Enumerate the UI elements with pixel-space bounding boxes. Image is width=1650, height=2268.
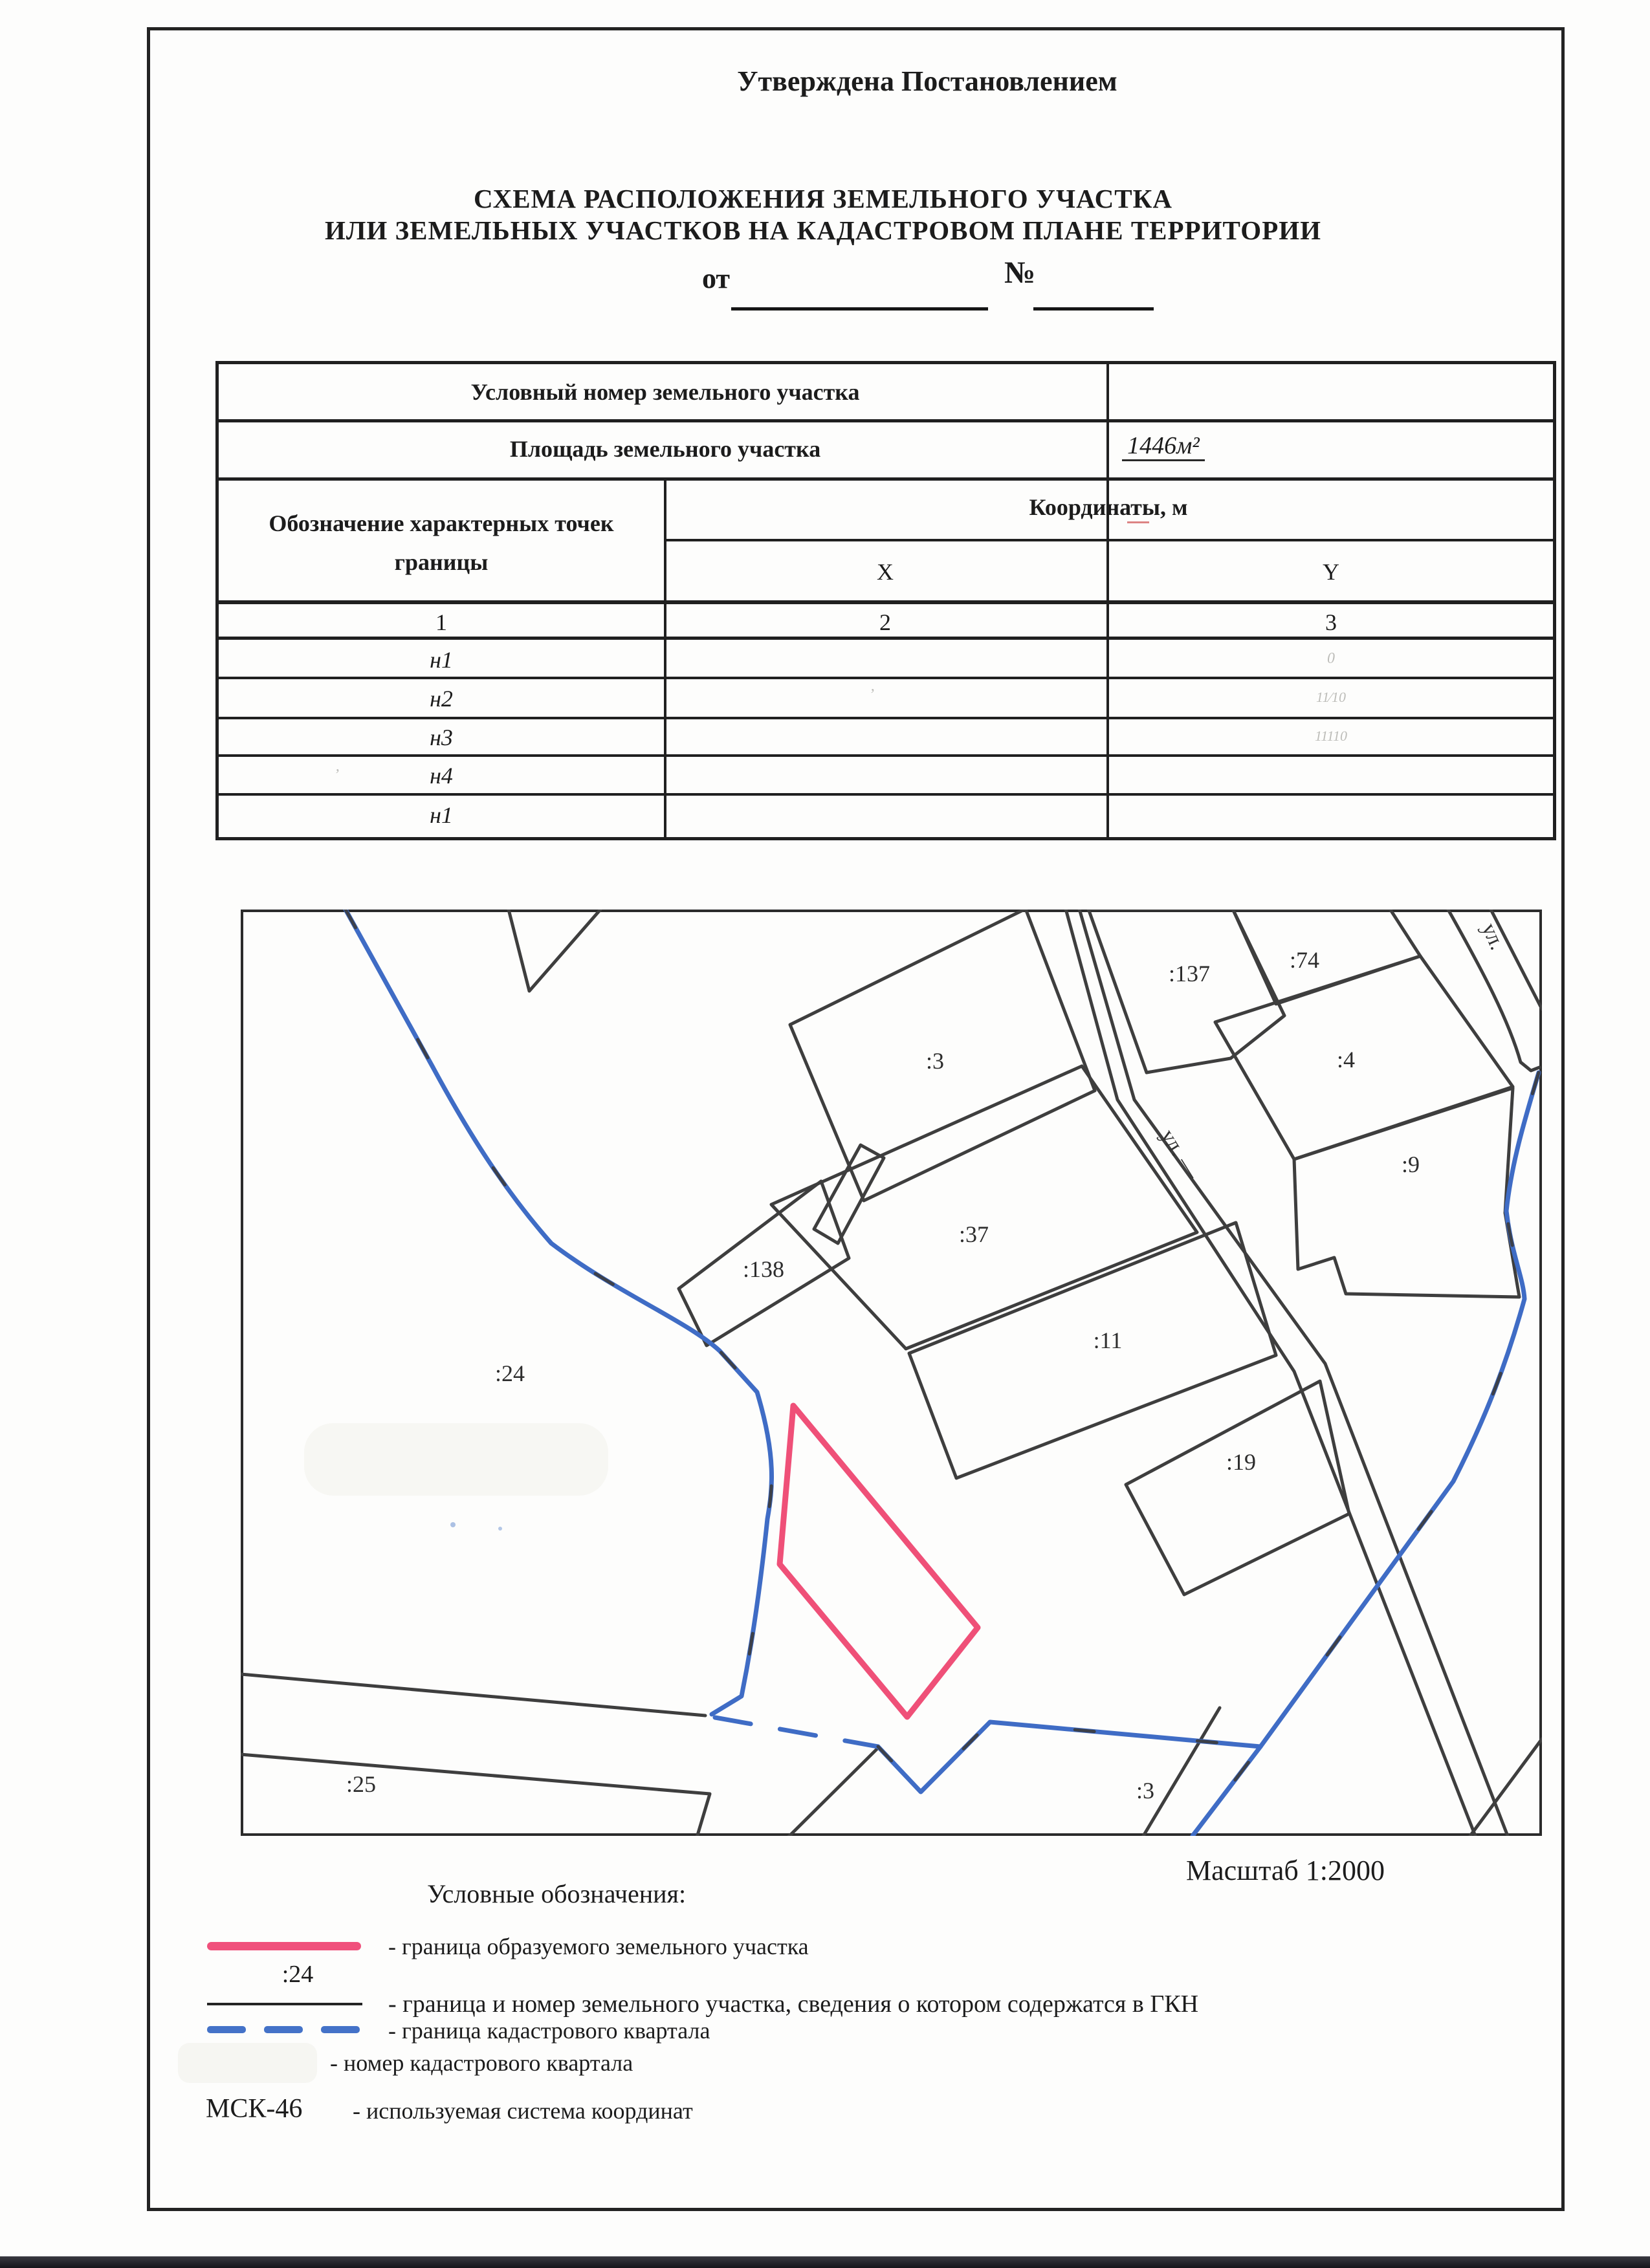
- parcel-label-4: :4: [1337, 1047, 1355, 1073]
- parcel-label-138: :138: [743, 1256, 784, 1282]
- parcel-label-3b: :3: [1136, 1778, 1154, 1804]
- faint-y-value: 11⁄10: [1109, 689, 1553, 706]
- point-row-label: н4: [219, 762, 664, 789]
- parcel-labels: :137 :74 :3 :4 :9 :37 :138 :11 :19 :24 :…: [346, 947, 1420, 1804]
- legend-dash: [264, 2026, 303, 2033]
- scanned-document-page: Утверждена Постановлением от № СХЕМА РАС…: [0, 0, 1650, 2268]
- quarter-boundary-left: [346, 910, 772, 1714]
- street-line: [1066, 910, 1475, 1836]
- coordinates-table: Условный номер земельного участка Площад…: [215, 361, 1556, 840]
- parcel-label-19: :19: [1226, 1449, 1256, 1475]
- scanner-edge-band: [0, 2256, 1650, 2268]
- table-rule: [219, 717, 1553, 719]
- legend-row-text: - граница и номер земельного участка, св…: [388, 1990, 1198, 2018]
- quarter-boundary-dashed: [715, 1717, 878, 1747]
- parcel-label-37: :37: [959, 1221, 989, 1247]
- points-header-line1: Обозначение характерных точек: [219, 510, 664, 537]
- erased-smudge: [304, 1423, 608, 1496]
- col-y-header: Y: [1109, 558, 1553, 585]
- point-row-label: н1: [219, 801, 664, 829]
- table-rule: [219, 677, 1553, 679]
- parcel-label-137: :137: [1169, 961, 1210, 987]
- parcel-9-boundary: [1294, 1088, 1519, 1297]
- legend-row-text: - номер кадастрового квартала: [330, 2049, 633, 2077]
- from-label: от: [702, 262, 730, 295]
- parcel-4-boundary: [1215, 956, 1513, 1159]
- table-rule-vertical: [664, 477, 666, 837]
- index-col-1: 1: [219, 609, 664, 636]
- ink-speck: [498, 1527, 502, 1531]
- legend-msk46-symbol: МСК-46: [206, 2093, 302, 2124]
- approved-by-line: Утверждена Постановлением: [668, 65, 1186, 98]
- faint-tick-mark: ’: [334, 767, 339, 784]
- parcel-19-boundary: [1126, 1381, 1349, 1595]
- coords-header: Координаты, м: [664, 494, 1553, 521]
- parcel-label-25: :25: [346, 1771, 376, 1797]
- point-row-label: н3: [219, 724, 664, 751]
- parcel-37-boundary: [771, 1066, 1197, 1349]
- col-x-header: X: [664, 558, 1106, 585]
- legend-erased-symbol: [178, 2043, 317, 2083]
- table-rule: [219, 637, 1553, 640]
- parcel-edge-bottom: [788, 1748, 878, 1836]
- red-ink-artifact: [1127, 521, 1149, 523]
- parcel-25-boundary: [241, 1754, 710, 1836]
- date-blank-line: [731, 307, 988, 311]
- number-label: №: [1004, 255, 1035, 290]
- legend-24-symbol: :24: [259, 1960, 336, 1989]
- table-rule: [219, 754, 1553, 757]
- faint-y-value: 0: [1109, 650, 1553, 668]
- point-row-label: н1: [219, 646, 664, 673]
- area-label: Площадь земельного участка: [264, 435, 1066, 463]
- parcel-notch-boundary: [509, 910, 600, 991]
- index-col-3: 3: [1109, 609, 1553, 636]
- parcel-label-3: :3: [926, 1048, 944, 1074]
- document-title-line2: ИЛИ ЗЕМЕЛЬНЫХ УЧАСТКОВ НА КАДАСТРОВОМ ПЛ…: [101, 215, 1545, 246]
- map-scale-label: Масштаб 1:2000: [1186, 1854, 1385, 1887]
- street-line-corner: [1470, 1739, 1542, 1836]
- legend-row-text: - используемая система координат: [353, 2097, 693, 2124]
- parcel-25-boundary: [241, 1674, 705, 1716]
- street-label-main: ул. —: [1156, 1125, 1205, 1184]
- table-rule: [219, 600, 1553, 604]
- faint-y-value: 11110: [1109, 728, 1553, 745]
- legend-row-text: - граница кадастрового квартала: [388, 2017, 710, 2044]
- area-value-text: 1446м²: [1122, 432, 1205, 461]
- legend-row-text: - граница образуемого земельного участка: [388, 1933, 809, 1960]
- faint-x-mark: ’: [869, 686, 874, 704]
- ink-speck: [450, 1522, 456, 1527]
- parcel-label-11: :11: [1094, 1327, 1123, 1353]
- conditional-number-label: Условный номер земельного участка: [264, 378, 1066, 406]
- parcel-label-74: :74: [1290, 947, 1319, 973]
- legend-dash: [207, 2026, 246, 2033]
- legend-dash: [321, 2026, 360, 2033]
- parcel-label-24: :24: [495, 1360, 525, 1386]
- number-blank-line: [1033, 307, 1154, 311]
- parcel-label-9: :9: [1402, 1151, 1420, 1177]
- area-value: 1446м²: [1079, 431, 1248, 460]
- legend-black-line-swatch: [207, 2003, 362, 2005]
- legend-blue-dash-swatch: [207, 2026, 362, 2033]
- table-rule: [219, 419, 1553, 422]
- document-title-line1: СХЕМА РАСПОЛОЖЕНИЯ ЗЕМЕЛЬНОГО УЧАСТКА: [101, 183, 1545, 214]
- table-rule: [219, 477, 1553, 481]
- parcel-74-boundary: [1233, 910, 1420, 1004]
- coincident-dash: [346, 910, 772, 1714]
- cadastral-map: :137 :74 :3 :4 :9 :37 :138 :11 :19 :24 :…: [241, 910, 1542, 1836]
- points-header-line2: границы: [219, 549, 664, 576]
- street-label-corner: ул.: [1477, 919, 1509, 953]
- legend-pink-line-swatch: [207, 1942, 361, 1950]
- point-row-label: н2: [219, 685, 664, 712]
- index-col-2: 2: [664, 609, 1106, 636]
- legend-title: Условные обозначения:: [427, 1879, 686, 1909]
- table-rule: [219, 793, 1553, 796]
